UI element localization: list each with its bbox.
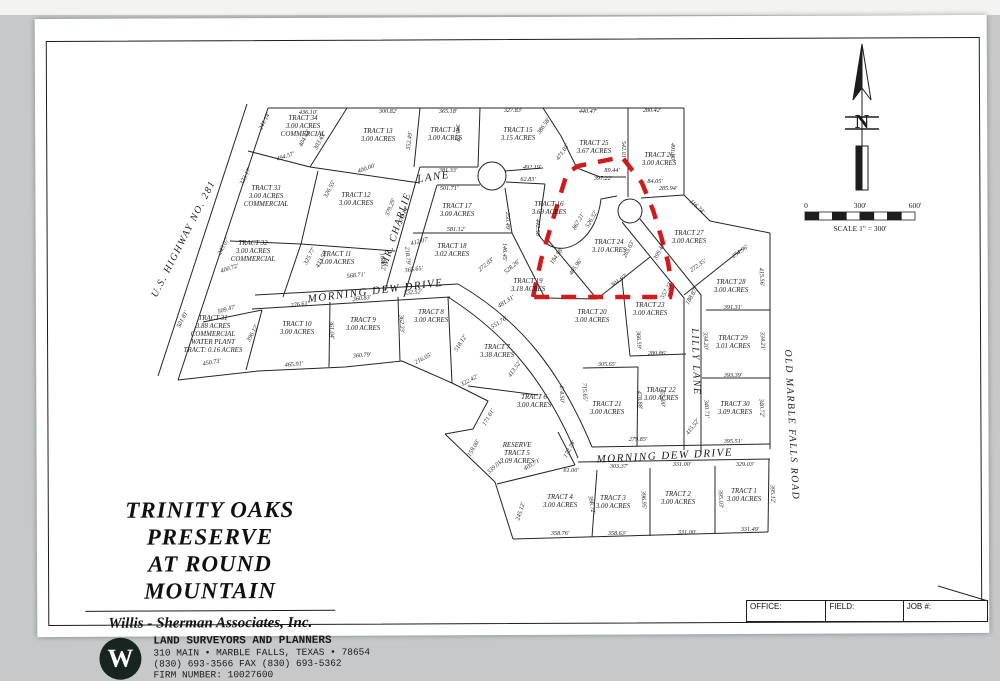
tract-label: TRACT 213.00 ACRES [589, 401, 625, 416]
dimension-label: 303.37' [609, 463, 629, 470]
dimension-label: 440.47' [579, 108, 598, 115]
dimension-label: 343.79' [454, 123, 461, 143]
dimension-label: 241.14' [257, 111, 272, 131]
dimension-label: 455.00' [659, 389, 667, 408]
tract-label: TRACT 103.00 ACRES [279, 321, 315, 336]
tract-label: TRACT 173.00 ACRES [439, 203, 475, 218]
dimension-label: 194.98' [549, 246, 566, 266]
dimension-label: 218.79' [403, 246, 412, 266]
tract-label: TRACT 63.00 ACRES [516, 394, 552, 409]
dimension-label: 61.00' [563, 467, 579, 474]
tract-label: TRACT 153.15 ACRES [500, 127, 536, 142]
dimension-label: 518.12' [453, 333, 469, 353]
footer-office-field: OFFICE: [747, 601, 826, 621]
tract-label: TRACT 193.18 ACRES [510, 278, 546, 293]
dimension-label: 395.12' [768, 484, 776, 504]
dimension-label: 280.86' [648, 350, 667, 357]
scale-caption: SCALE 1" = 300' [833, 224, 887, 233]
dimension-label: 397.22' [593, 175, 613, 182]
dimension-label: 358.63' [607, 530, 627, 537]
dimension-label: 362.23' [397, 314, 405, 334]
tract-label: TRACT 43.00 ACRES [542, 494, 578, 509]
dimension-label: 323.17' [238, 166, 254, 187]
dimension-label: 332.52' [402, 288, 423, 297]
tract-label: TRACT 23.00 ACRES [660, 491, 696, 506]
cul-de-sac-circle-lilly [618, 199, 642, 223]
tract-label: TRACT 303.09 ACRES [717, 401, 753, 416]
road-label: OLD MARBLE FALLS ROAD [782, 349, 801, 500]
scale-bar: 0 300' 600' SCALE 1" = 300' [804, 201, 922, 233]
footer-fields: OFFICE: FIELD: JOB #: [746, 600, 988, 622]
dimension-label: 395.51' [723, 438, 743, 445]
dimension-label: 391.31' [723, 304, 743, 311]
dimension-label: 352.49' [405, 131, 414, 152]
dimension-label: 331.00' [677, 529, 697, 536]
dimension-label: 366.59' [634, 330, 642, 350]
dimension-label: 358.76' [550, 530, 570, 537]
footer-field-field: FIELD: [826, 601, 903, 621]
dimension-label: 159.00' [466, 438, 482, 458]
north-arrow: N [845, 44, 879, 190]
dimension-label: 334.20' [701, 331, 709, 351]
dimension-label: 89.44' [604, 167, 620, 174]
tract-label: TRACT 273.00 ACRES [671, 230, 707, 245]
dimension-label: 164.32' [378, 252, 387, 272]
dimension-label: 396.95' [639, 490, 647, 510]
dimension-label: 276.61' [290, 300, 310, 310]
cul-de-sac-circle-mr-charlie [478, 162, 506, 190]
dimension-label: 492.19' [523, 164, 542, 171]
tract-label: TRACT 133.00 ACRES [360, 128, 396, 143]
dimension-label: 415.56' [758, 268, 766, 287]
dimension-label: 361.04' [327, 320, 335, 340]
dimension-label: 280.42' [643, 107, 662, 114]
dimension-label: 146.45' [501, 243, 508, 262]
tract-label: TRACT 123.00 ACRES [338, 192, 374, 207]
dimension-label: 474.50' [558, 385, 566, 404]
dimension-label: 715.65' [581, 383, 589, 402]
tract-label: TRACT 33.00 ACRES [595, 495, 631, 510]
dimension-label: 62.83' [520, 176, 536, 183]
dimension-label: 491.90' [669, 143, 676, 162]
tract-label: TRACT 93.00 ACRES [345, 317, 381, 332]
tract-label: TRACT 323.00 ACRESCOMMERCIAL [231, 240, 276, 263]
dimension-label: 413.52' [507, 359, 524, 379]
tract-label: TRACT 163.69 ACRES [531, 201, 567, 216]
dimension-label: 272.35' [689, 257, 709, 274]
dimension-label: 188.87' [684, 286, 700, 306]
dimension-label: 301.97' [609, 272, 629, 289]
dimension-label: 331.00' [672, 461, 692, 468]
dimension-label: 551.76' [490, 314, 510, 330]
road-label: U.S. HIGHWAY NO. 281 [149, 179, 218, 300]
dimension-label: 340.71' [702, 399, 710, 419]
surveyor-phone: (830) 693-3566 FAX (830) 693-5362 [153, 658, 370, 670]
dimension-label: 393.39' [723, 372, 743, 379]
dimension-label: 272.03' [477, 256, 496, 274]
tract-label: TRACT 243.10 ACRES [591, 239, 627, 254]
tract-label: TRACT 203.00 ACRES [574, 309, 610, 324]
page: { "title_block": { "line1": "TRINITY OAK… [0, 0, 1000, 646]
dimension-label: 329.03' [735, 461, 755, 468]
dimension-label: 415.52' [684, 417, 701, 436]
dimension-label: 305.65' [597, 361, 617, 368]
dimension-label: 327.83' [503, 107, 523, 114]
tract-label: TRACT 283.00 ACRES [713, 279, 749, 294]
tract-label: TRACT 233.00 ACRES [632, 302, 668, 317]
dimension-label: 360.79' [351, 351, 372, 360]
dimension-label: 400.72' [220, 262, 240, 275]
dimension-label: 116.74' [688, 198, 706, 216]
scale-zero: 0 [804, 201, 808, 210]
tract-label: TRACT 293.01 ACRES [715, 335, 751, 350]
dimension-label: 450.73' [202, 357, 222, 367]
tract-label: TRACT 73.38 ACRES [479, 344, 515, 359]
dimension-label: 279.85' [629, 436, 648, 443]
dimension-label: 326.55' [322, 179, 338, 200]
dimension-label: 365.65' [403, 265, 424, 275]
dimension-label: 216.05' [414, 351, 434, 366]
scale-mid: 300' [854, 201, 867, 210]
dimension-label: 334.21' [758, 331, 766, 351]
dimension-label: 542.01' [620, 141, 627, 160]
dimension-label: 396.12' [245, 323, 261, 344]
dimension-label: 172.79' [562, 439, 578, 459]
dimension-label: 300.82' [378, 108, 398, 115]
dimension-label: 481.31' [497, 293, 517, 309]
dimension-label: 365.18' [438, 108, 458, 115]
dimension-label: 442.58' [534, 219, 541, 238]
dimension-label: 84.05' [647, 178, 663, 185]
dimension-label: 412.07' [410, 236, 430, 247]
plat-map-svg: N 0 300' 600' SCALE 1" = 300' U.S. HIGHW… [0, 0, 1000, 646]
road-label: LILLY LANE [689, 327, 702, 396]
footer-job-field: JOB #: [904, 601, 987, 621]
dimension-label: 381.33' [438, 167, 458, 174]
tract-label: TRACT 333.00 ACRESCOMMERCIAL [244, 185, 289, 208]
dimension-label: 867.21' [571, 211, 587, 231]
dimension-label: 509.47' [217, 303, 237, 315]
tract-label: TRACT 13.00 ACRES [726, 488, 762, 503]
dimension-label: 526.32' [584, 209, 600, 229]
dimension-label: 478.88' [636, 391, 644, 410]
tract-label: TRACT 253.67 ACRES [576, 140, 612, 155]
tract-label: TRACT 313.88 ACRESCOMMERCIALWATER PLANTT… [184, 315, 243, 354]
dimension-label: 436.10' [299, 109, 318, 116]
north-label: N [855, 111, 870, 133]
dimension-label: 501.81' [175, 309, 190, 329]
dimension-label: 568.71' [346, 271, 366, 280]
dimension-label: 400.00' [357, 162, 377, 175]
dimension-label: 285.94' [659, 185, 678, 192]
dimension-label: 465.91' [284, 360, 304, 369]
dimension-label: 340.72' [757, 398, 765, 418]
tract-label: TRACT 183.02 ACRES [434, 243, 470, 258]
tract-label: TRACT 83.00 ACRES [413, 309, 449, 324]
dimension-labels: 436.10'300.82'365.18'327.83'440.47'280.4… [175, 107, 776, 537]
dimension-label: 245.12' [514, 501, 527, 521]
dimension-label: 386.58' [535, 116, 552, 136]
dimension-label: 250.49' [504, 212, 511, 231]
dimension-label: 331.49' [740, 526, 760, 533]
dimension-label: 395.03' [716, 489, 724, 509]
dimension-label: 243.07' [216, 236, 231, 256]
surveyor-firm-number: FIRM NUMBER: 10027600 [153, 669, 370, 681]
dimension-label: 581.12' [447, 226, 466, 233]
dimension-label: 501.71' [440, 185, 459, 192]
scale-end: 600' [909, 201, 922, 210]
dimension-label: 254.96' [731, 243, 751, 260]
